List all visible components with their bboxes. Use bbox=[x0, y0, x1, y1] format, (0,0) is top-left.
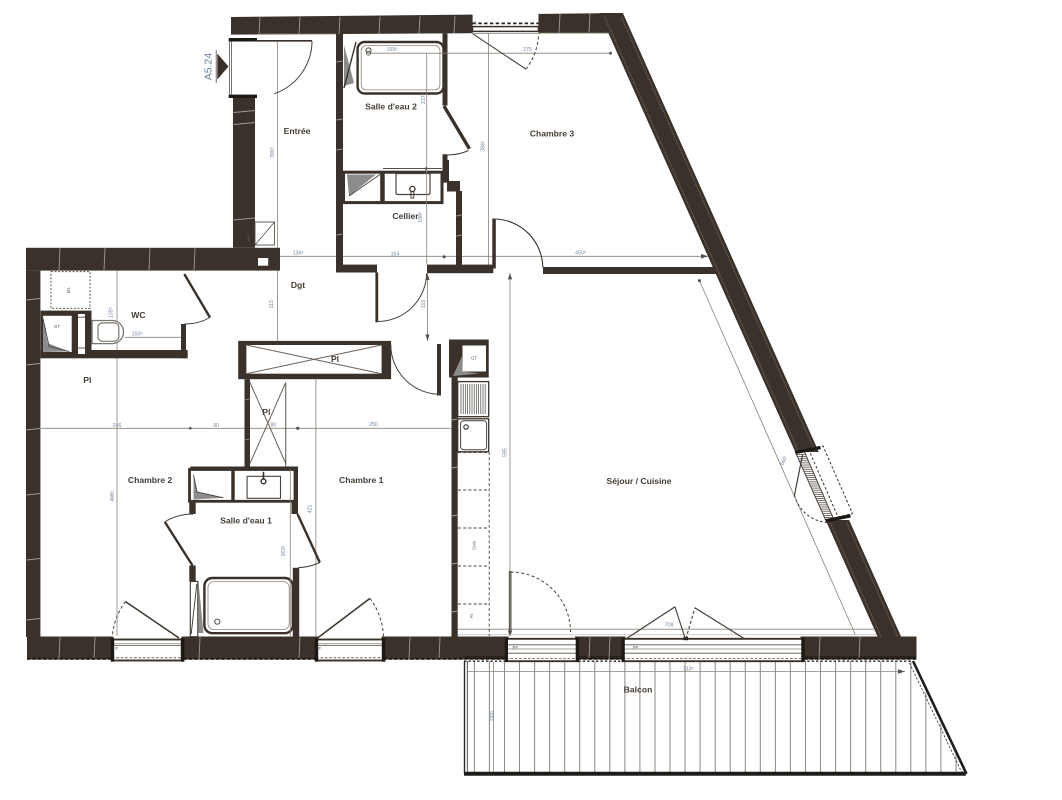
svg-text:Entrée: Entrée bbox=[284, 126, 311, 136]
svg-text:246: 246 bbox=[113, 423, 122, 429]
svg-text:GT: GT bbox=[54, 324, 60, 329]
svg-text:250: 250 bbox=[369, 422, 378, 428]
svg-text:110: 110 bbox=[421, 300, 427, 308]
svg-text:ML: ML bbox=[66, 286, 71, 293]
svg-text:élec.: élec. bbox=[246, 232, 251, 241]
svg-text:Séjour / Cuisine: Séjour / Cuisine bbox=[607, 476, 672, 486]
svg-text:80: 80 bbox=[271, 423, 277, 429]
svg-text:Salle d'eau 2: Salle d'eau 2 bbox=[365, 102, 417, 112]
svg-text:Cuis.: Cuis. bbox=[472, 540, 477, 550]
svg-text:PF.: PF. bbox=[513, 645, 519, 650]
svg-text:F.: F. bbox=[116, 646, 119, 651]
svg-text:PF: PF bbox=[633, 645, 639, 650]
svg-text:A5.24: A5.24 bbox=[203, 53, 215, 81]
svg-text:Balcon: Balcon bbox=[624, 685, 653, 695]
svg-text:Pl: Pl bbox=[331, 354, 339, 364]
svg-text:WC: WC bbox=[131, 310, 145, 320]
svg-text:164: 164 bbox=[391, 252, 400, 258]
svg-text:Cellier: Cellier bbox=[392, 211, 419, 221]
svg-text:Pl: Pl bbox=[83, 375, 91, 385]
svg-text:708: 708 bbox=[665, 622, 674, 628]
svg-text:GT: GT bbox=[471, 356, 477, 361]
svg-text:Pl: Pl bbox=[262, 407, 270, 417]
svg-text:421: 421 bbox=[307, 504, 313, 513]
svg-text:Salle d'eau 1: Salle d'eau 1 bbox=[220, 516, 272, 526]
svg-text:90: 90 bbox=[213, 423, 219, 429]
svg-text:Chambre 1: Chambre 1 bbox=[339, 475, 384, 485]
svg-text:Chambre 2: Chambre 2 bbox=[128, 475, 173, 485]
svg-text:113: 113 bbox=[269, 300, 275, 308]
svg-text:Dgt: Dgt bbox=[291, 280, 305, 290]
svg-text:595: 595 bbox=[503, 448, 509, 457]
svg-text:F.: F. bbox=[474, 21, 477, 26]
svg-text:Fr.: Fr. bbox=[469, 613, 474, 618]
svg-text:F.: F. bbox=[319, 646, 322, 651]
svg-text:Chambre 3: Chambre 3 bbox=[530, 129, 575, 139]
svg-text:275: 275 bbox=[523, 47, 532, 53]
